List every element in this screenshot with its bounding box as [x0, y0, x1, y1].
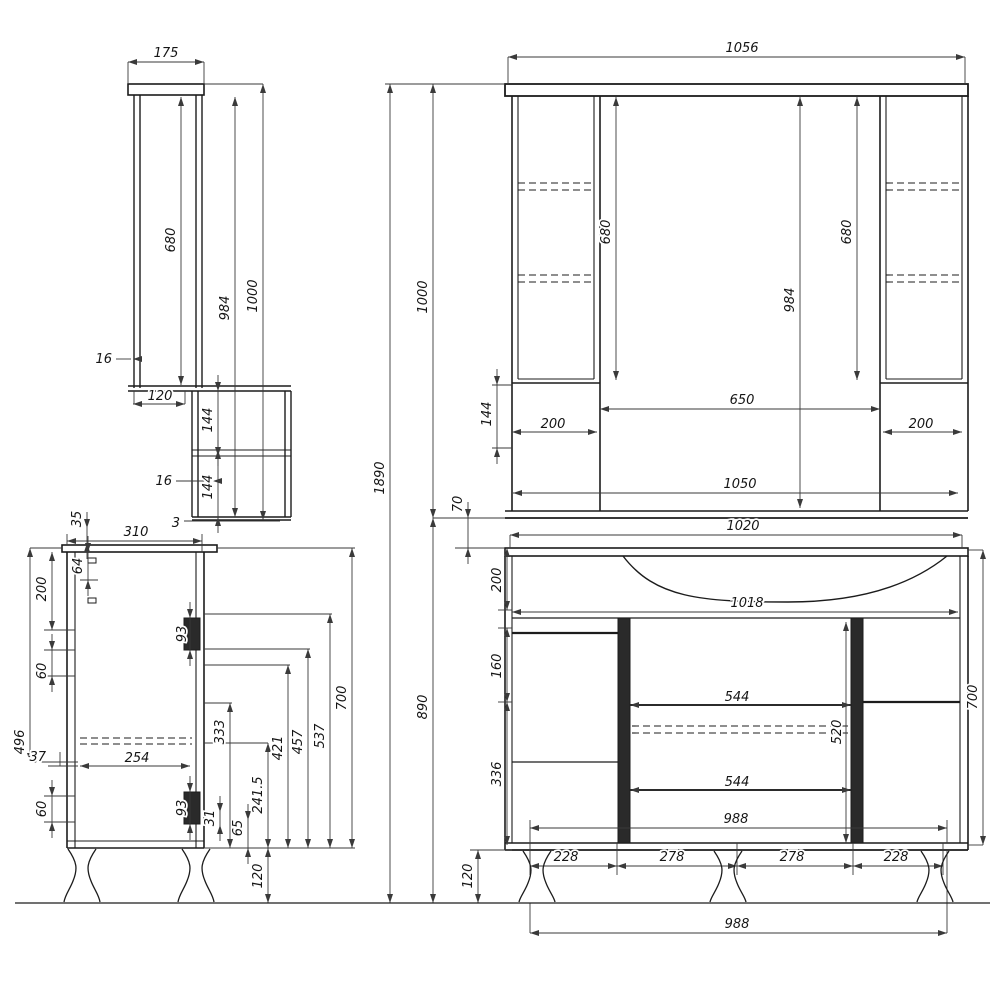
- dim-arrow: [854, 97, 860, 106]
- dim-base-side-h31: 31: [203, 810, 218, 827]
- dim-arrow: [232, 97, 238, 106]
- dim-arrow: [349, 839, 355, 848]
- dim-arrow: [883, 429, 892, 435]
- dim-arrow: [430, 509, 436, 518]
- drawing-path: [917, 851, 929, 902]
- drawing-path: [734, 851, 746, 902]
- dim-arrow: [737, 863, 746, 869]
- dim-arrow: [187, 650, 193, 659]
- dim-mirror-side-width: 175: [154, 46, 179, 61]
- dim-mirror-side-mirror-height: 680: [164, 228, 179, 253]
- dim-arrow: [430, 518, 436, 527]
- dim-arrow: [513, 490, 522, 496]
- dim-arrow: [265, 839, 271, 848]
- dim-arrow: [949, 609, 958, 615]
- dim-base-side-h64: 64: [71, 558, 86, 575]
- dim-mirror-side-shelf-depth: 120: [148, 389, 173, 404]
- dim-arrow: [842, 702, 851, 708]
- dim-arrow: [956, 54, 965, 60]
- dim-overall-base-section: 890: [416, 695, 431, 720]
- mirror-cabinet-side-view: 175166809841000120144161443: [95, 46, 291, 533]
- dim-arrow: [949, 490, 958, 496]
- dim-mirror-side-gap-144-top: 144: [201, 408, 216, 433]
- dim-base-side-height-700: 700: [335, 686, 350, 711]
- dim-arrow: [843, 622, 849, 631]
- dim-arrow: [980, 550, 986, 559]
- dim-mirror-front-left-gap-144: 144: [480, 402, 495, 427]
- dim-arrow: [843, 834, 849, 843]
- dim-base-side-h37: 37: [29, 750, 46, 765]
- dim-base-front-h200: 200: [490, 568, 505, 593]
- dim-arrow: [938, 930, 947, 936]
- dim-arrow: [387, 84, 393, 93]
- dim-arrow: [305, 839, 311, 848]
- dim-arrow: [195, 59, 204, 65]
- drawing-path: [64, 849, 76, 902]
- vanity-cabinet-front-view: 1020101820016033654454452098822827827822…: [461, 519, 986, 936]
- dim-base-side-slide-93-top: 93: [175, 626, 190, 643]
- dim-mirror-front-center-width: 650: [730, 393, 755, 408]
- drawing-path: [623, 556, 947, 602]
- dim-mirror-front-left-col-height: 680: [599, 220, 614, 245]
- dim-base-side-depth: 310: [124, 525, 149, 540]
- dim-mirror-side-back-height: 984: [218, 296, 233, 321]
- dim-base-side-h60-top: 60: [35, 663, 50, 680]
- dim-arrow: [980, 836, 986, 845]
- dim-arrow: [613, 371, 619, 380]
- dim-arrow: [530, 825, 539, 831]
- dim-arrow: [430, 894, 436, 903]
- dim-base-front-inner-988: 988: [724, 812, 749, 827]
- dim-mirror-side-panel-16-top: 16: [95, 352, 112, 367]
- dim-arrow: [854, 371, 860, 380]
- dim-base-front-h336: 336: [490, 762, 505, 787]
- dim-base-front-s228-right: 228: [884, 850, 909, 865]
- dim-arrow: [349, 548, 355, 557]
- dim-arrow: [128, 59, 137, 65]
- drawing-rect: [88, 558, 96, 563]
- dim-arrow: [327, 614, 333, 623]
- dim-arrow: [232, 508, 238, 517]
- dim-arrow: [953, 429, 962, 435]
- vanity-cabinet-side-view: 310352006460496372546093933165241.512033…: [13, 511, 355, 903]
- dim-arrow: [530, 930, 539, 936]
- dim-arrow: [265, 894, 271, 903]
- dim-base-front-bottom-988: 988: [725, 917, 750, 932]
- dim-arrow: [49, 787, 55, 796]
- dim-mirror-front-left-col-width: 200: [541, 417, 566, 432]
- drawing-rect: [851, 618, 863, 843]
- dim-arrow: [49, 552, 55, 561]
- dim-arrow: [617, 863, 626, 869]
- dim-base-side-h241-5: 241.5: [251, 776, 266, 813]
- dim-mirror-side-total-height: 1000: [246, 279, 261, 312]
- dim-arrow: [176, 401, 185, 407]
- dim-arrow: [49, 621, 55, 630]
- drawing-rect: [618, 618, 630, 843]
- dim-base-front-h160: 160: [490, 654, 505, 679]
- dim-arrow: [494, 376, 500, 385]
- dim-arrow: [510, 532, 519, 538]
- dim-arrow: [508, 54, 517, 60]
- dim-base-side-runner-254: 254: [125, 751, 150, 766]
- dim-base-side-h200: 200: [35, 577, 50, 602]
- dim-overall-mirror-section: 1000: [416, 280, 431, 313]
- dim-base-side-h60-bottom: 60: [35, 801, 50, 818]
- dim-overall-total-height: 1890: [373, 461, 388, 494]
- dim-arrow: [215, 447, 221, 456]
- dim-arrow: [608, 863, 617, 869]
- dim-arrow: [327, 839, 333, 848]
- dim-arrow: [227, 839, 233, 848]
- dim-mirror-front-gap-70: 70: [451, 496, 466, 513]
- dim-arrow: [227, 703, 233, 712]
- dim-arrow: [613, 97, 619, 106]
- dim-mirror-front-right-col-width: 200: [909, 417, 934, 432]
- dim-base-front-mid-544-top: 544: [725, 690, 750, 705]
- dim-base-side-h421: 421: [271, 736, 286, 761]
- dim-base-side-slide-93-bottom: 93: [175, 800, 190, 817]
- technical-drawing-page: 1751668098410001201441614431056680984680…: [0, 0, 1000, 1000]
- dim-base-front-height-700: 700: [966, 685, 981, 710]
- dim-arrow: [215, 517, 221, 526]
- dim-arrow: [49, 641, 55, 650]
- dim-arrow: [512, 609, 521, 615]
- dim-arrow: [465, 548, 471, 557]
- dim-arrow: [85, 580, 91, 589]
- dim-base-front-s228-left: 228: [554, 850, 579, 865]
- drawing-rect: [505, 548, 968, 556]
- dim-base-side-h457: 457: [291, 729, 306, 755]
- dim-arrow: [245, 848, 251, 857]
- drawing-path: [710, 851, 722, 902]
- dim-base-front-mid-544-bottom: 544: [725, 775, 750, 790]
- dim-base-front-s278-right: 278: [780, 850, 805, 865]
- dim-arrow: [305, 649, 311, 658]
- dim-arrow: [588, 429, 597, 435]
- dim-base-front-h520: 520: [830, 720, 845, 745]
- dim-arrow: [187, 783, 193, 792]
- dim-base-side-h65: 65: [231, 820, 246, 837]
- drawing-path: [202, 849, 214, 902]
- dim-arrow: [512, 429, 521, 435]
- dim-base-side-legs-120: 120: [251, 864, 266, 889]
- dim-arrow: [630, 702, 639, 708]
- dim-arrow: [475, 850, 481, 859]
- dim-mirror-front-right-col-height: 680: [840, 220, 855, 245]
- dim-arrow: [475, 894, 481, 903]
- dim-arrow: [630, 787, 639, 793]
- dim-arrow: [387, 894, 393, 903]
- dim-mirror-front-total-width: 1056: [725, 41, 758, 56]
- dim-arrow: [80, 763, 89, 769]
- dim-arrow: [853, 863, 862, 869]
- furniture-dimension-drawing: 1751668098410001201441614431056680984680…: [0, 0, 1000, 1000]
- dim-mirror-side-gap-144-bottom: 144: [201, 475, 216, 500]
- dim-arrow: [953, 532, 962, 538]
- dim-arrow: [797, 499, 803, 508]
- dim-arrow: [260, 511, 266, 520]
- mirror-cabinet-front-view: 1056680984680144200650200105070: [451, 41, 968, 564]
- overall-dimensions: 18901000890: [373, 84, 505, 903]
- dim-arrow: [285, 665, 291, 674]
- dim-base-side-h333: 333: [213, 720, 228, 745]
- dim-arrow: [260, 84, 266, 93]
- dim-arrow: [430, 84, 436, 93]
- dim-arrow: [187, 609, 193, 618]
- dim-arrow: [181, 763, 190, 769]
- drawing-path: [178, 849, 190, 902]
- dim-base-front-legs-120: 120: [461, 864, 476, 889]
- dim-arrow: [938, 825, 947, 831]
- dim-arrow: [49, 822, 55, 831]
- dim-arrow: [178, 97, 184, 106]
- drawing-path: [88, 849, 100, 902]
- dim-mirror-side-bottom-3: 3: [172, 516, 180, 531]
- dim-arrow: [187, 824, 193, 833]
- dim-arrow: [178, 376, 184, 385]
- dim-arrow: [844, 863, 853, 869]
- dim-arrow: [265, 848, 271, 857]
- drawing-rect: [128, 84, 204, 95]
- dim-base-side-overhang-35: 35: [70, 511, 85, 528]
- dim-arrow: [871, 406, 880, 412]
- dim-base-front-top-width: 1020: [726, 519, 759, 534]
- dim-arrow: [600, 406, 609, 412]
- dim-arrow: [797, 97, 803, 106]
- drawing-path: [519, 851, 531, 902]
- dim-base-side-h496: 496: [13, 730, 28, 755]
- dim-arrow: [842, 787, 851, 793]
- dim-arrow: [67, 538, 76, 544]
- dim-arrow: [494, 448, 500, 457]
- drawing-rect: [505, 84, 968, 96]
- dim-mirror-side-panel-16-mid: 16: [155, 474, 172, 489]
- dim-base-side-h537: 537: [313, 723, 328, 749]
- dim-arrow: [27, 548, 33, 557]
- dim-arrow: [285, 839, 291, 848]
- dim-base-front-basin-width: 1018: [730, 596, 763, 611]
- dim-arrow: [193, 538, 202, 544]
- dim-mirror-front-bottom-width: 1050: [723, 477, 756, 492]
- drawing-rect: [88, 598, 96, 603]
- dim-base-front-s278-left: 278: [660, 850, 685, 865]
- dim-mirror-front-center-height: 984: [783, 288, 798, 313]
